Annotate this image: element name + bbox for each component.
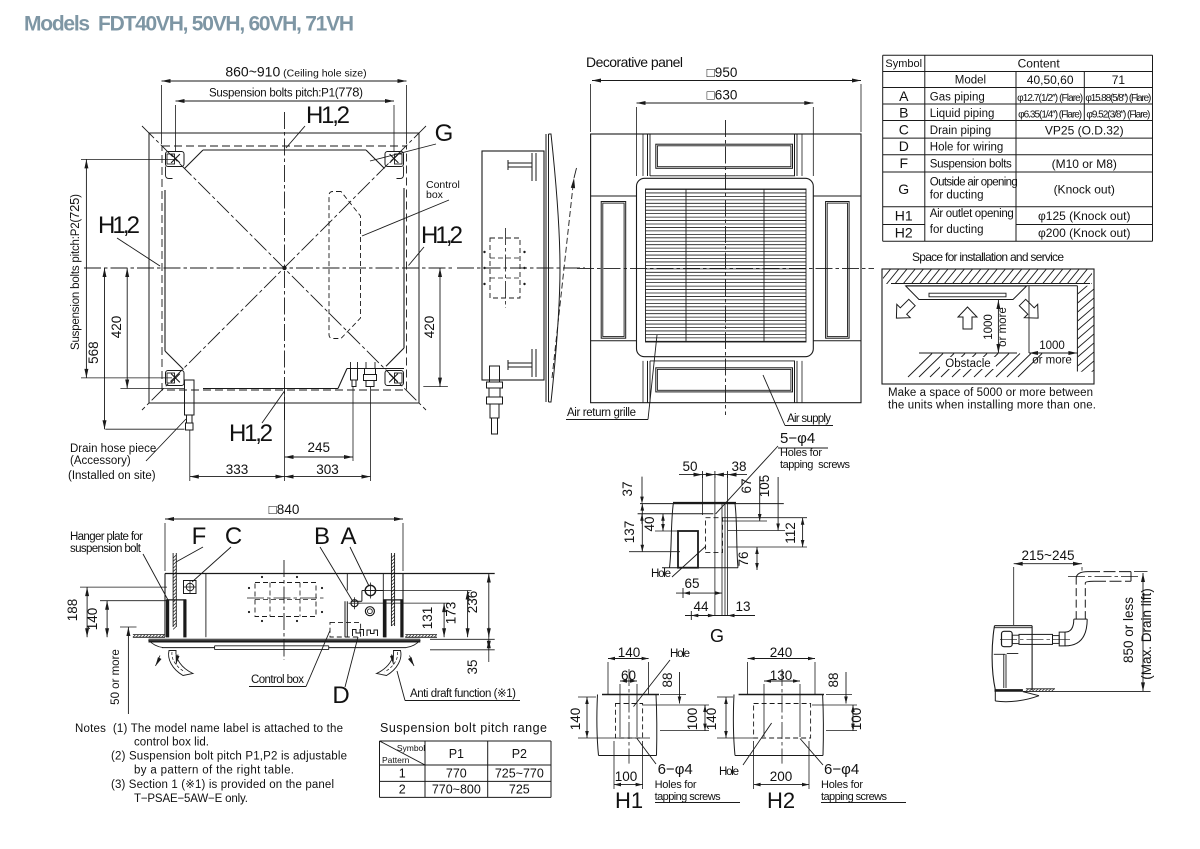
- svg-text:tapping screws: tapping screws: [655, 791, 722, 803]
- svg-text:Suspension bolts: Suspension bolts: [930, 159, 1012, 171]
- svg-text:F: F: [899, 155, 908, 171]
- svg-text:Models FDT40VH, 50VH, 60VH, 7: Models FDT40VH, 50VH, 60VH, 71VH: [24, 13, 354, 36]
- svg-text:H2: H2: [767, 788, 795, 813]
- svg-text:φ200 (Knock out): φ200 (Knock out): [1038, 226, 1131, 240]
- svg-text:100: 100: [615, 769, 638, 784]
- svg-text:Symbol: Symbol: [885, 58, 922, 70]
- svg-text:(M10 or M8): (M10 or M8): [1052, 157, 1117, 171]
- svg-text:Suspension bolts pitch:P2(725): Suspension bolts pitch:P2(725): [67, 194, 82, 350]
- svg-text:Air supply: Air supply: [787, 413, 831, 425]
- svg-text:137: 137: [622, 521, 637, 544]
- svg-text:Pattern: Pattern: [382, 755, 410, 765]
- svg-text:G: G: [435, 120, 454, 147]
- svg-text:suspension bolt: suspension bolt: [70, 543, 142, 555]
- svg-text:303: 303: [316, 462, 339, 477]
- svg-text:φ9.52(3/8″) (Flare): φ9.52(3/8″) (Flare): [1086, 109, 1150, 120]
- svg-text:5−φ4: 5−φ4: [780, 430, 815, 447]
- svg-text:770: 770: [446, 767, 467, 781]
- svg-text:H1: H1: [895, 208, 913, 224]
- svg-text:240: 240: [770, 645, 793, 660]
- svg-text:568: 568: [86, 341, 101, 364]
- svg-text:(2) Suspension bolt pitch P1,P: (2) Suspension bolt pitch P1,P2 is adjus…: [111, 751, 347, 763]
- svg-text:G: G: [898, 181, 909, 197]
- svg-text:140: 140: [85, 608, 100, 631]
- svg-text:Suspension bolt pitch range: Suspension bolt pitch range: [380, 721, 547, 735]
- svg-text:φ6.35(1/4″) (Flare): φ6.35(1/4″) (Flare): [1018, 109, 1082, 120]
- svg-text:P2: P2: [512, 747, 527, 761]
- svg-text:420: 420: [422, 316, 437, 339]
- svg-text:Hole: Hole: [719, 766, 739, 778]
- svg-text:188: 188: [65, 599, 80, 622]
- svg-text:D: D: [332, 682, 349, 709]
- svg-text:the units when installing more: the units when installing more than one.: [888, 400, 1096, 412]
- svg-text:140: 140: [568, 708, 583, 731]
- svg-text:2: 2: [399, 783, 406, 797]
- svg-text:box: box: [426, 189, 444, 201]
- svg-text:H2: H2: [895, 225, 913, 241]
- svg-text:770~800: 770~800: [432, 783, 481, 797]
- svg-text:67: 67: [739, 478, 754, 493]
- svg-text:Space for installation and ser: Space for installation and service: [912, 250, 1064, 264]
- svg-text:100: 100: [849, 708, 864, 731]
- svg-text:H1,2: H1,2: [306, 102, 350, 129]
- svg-text:50 or more: 50 or more: [110, 649, 122, 705]
- svg-text:Make a space of 5000 or more b: Make a space of 5000 or more between: [888, 387, 1093, 399]
- svg-text:φ15.88(5/8″) (Flare): φ15.88(5/8″) (Flare): [1085, 93, 1151, 104]
- svg-text:Holes for: Holes for: [780, 447, 822, 459]
- svg-text:Control box: Control box: [251, 674, 304, 686]
- svg-text:112: 112: [783, 522, 798, 544]
- svg-text:420: 420: [109, 316, 124, 339]
- svg-text:VP25 (O.D.32): VP25 (O.D.32): [1045, 123, 1124, 137]
- svg-text:333: 333: [226, 462, 249, 477]
- svg-text:Holes for: Holes for: [655, 779, 697, 791]
- svg-text:38: 38: [731, 459, 746, 474]
- svg-text:Hole for wiring: Hole for wiring: [930, 142, 1004, 154]
- svg-text:40,50,60: 40,50,60: [1027, 73, 1074, 87]
- svg-text:100: 100: [685, 708, 700, 731]
- svg-text:A: A: [899, 88, 909, 104]
- svg-text:65: 65: [684, 576, 699, 591]
- svg-text:G: G: [710, 626, 724, 646]
- svg-text:35: 35: [465, 659, 480, 674]
- svg-text:or more: or more: [997, 307, 1009, 347]
- svg-text:(Installed on site): (Installed on site): [68, 470, 156, 482]
- svg-text:850 or less: 850 or less: [1121, 597, 1136, 663]
- svg-text:Model: Model: [955, 75, 986, 87]
- svg-text:for ducting: for ducting: [930, 224, 984, 236]
- svg-text:Hole: Hole: [670, 648, 690, 660]
- svg-text:Hanger plate for: Hanger plate for: [70, 531, 143, 543]
- svg-text:(3) Section 1 (※1) is provided: (3) Section 1 (※1) is provided on the pa…: [111, 779, 334, 791]
- svg-text:Suspension bolts pitch:P1(778): Suspension bolts pitch:P1(778): [209, 85, 363, 100]
- svg-text:control box lid.: control box lid.: [134, 737, 209, 749]
- svg-text:6−φ4: 6−φ4: [824, 761, 859, 778]
- svg-text:A: A: [340, 523, 356, 550]
- svg-text:725~770: 725~770: [495, 767, 544, 781]
- svg-text:φ12.7(1/2″) (Flare): φ12.7(1/2″) (Flare): [1017, 93, 1083, 104]
- svg-text:for ducting: for ducting: [930, 190, 984, 202]
- svg-text:B: B: [314, 523, 330, 550]
- svg-text:88: 88: [826, 672, 841, 687]
- svg-text:76: 76: [736, 551, 751, 566]
- svg-text:Notes (1) The model name labe: Notes (1) The model name label is attach…: [75, 723, 343, 735]
- svg-text:Outside air opening: Outside air opening: [930, 177, 1018, 189]
- svg-text:(Accessory): (Accessory): [70, 455, 131, 467]
- svg-text:Drain piping: Drain piping: [930, 125, 991, 137]
- svg-text:Decorative panel: Decorative panel: [586, 54, 683, 70]
- svg-text:F: F: [192, 523, 207, 550]
- svg-text:H1,2: H1,2: [229, 420, 273, 447]
- svg-text:131: 131: [420, 607, 435, 630]
- svg-text:40: 40: [642, 516, 657, 531]
- svg-text:1000: 1000: [1039, 340, 1065, 352]
- svg-text:Air return grille: Air return grille: [567, 407, 636, 419]
- svg-text:□840: □840: [269, 502, 300, 517]
- svg-text:H1,2: H1,2: [421, 222, 463, 249]
- svg-text:Air outlet opening: Air outlet opening: [930, 208, 1014, 220]
- svg-text:Anti draft function (※1): Anti draft function (※1): [410, 688, 516, 700]
- svg-text:□630: □630: [707, 88, 738, 103]
- svg-text:Gas piping: Gas piping: [930, 92, 985, 104]
- svg-text:Symbol: Symbol: [397, 743, 425, 753]
- svg-text:T−PSAE−5AW−E only.: T−PSAE−5AW−E only.: [134, 793, 248, 805]
- svg-text:H1: H1: [615, 788, 643, 813]
- svg-text:H1,2: H1,2: [98, 212, 140, 239]
- svg-text:Liquid piping: Liquid piping: [930, 108, 995, 120]
- svg-text:13: 13: [735, 599, 750, 614]
- svg-text:(Max. Drain lift): (Max. Drain lift): [1139, 588, 1154, 680]
- svg-text:Drain hose piece: Drain hose piece: [70, 443, 156, 455]
- svg-text:P1: P1: [449, 747, 464, 761]
- svg-text:725: 725: [509, 783, 530, 797]
- svg-text:1: 1: [399, 767, 406, 781]
- svg-text:C: C: [899, 122, 909, 138]
- svg-text:50: 50: [682, 459, 697, 474]
- svg-text:□950: □950: [707, 65, 738, 80]
- svg-text:or more: or more: [1032, 355, 1072, 367]
- svg-text:(Knock out): (Knock out): [1054, 183, 1115, 197]
- svg-text:by a pattern of the right tabl: by a pattern of the right table.: [134, 765, 294, 777]
- svg-text:Holes for: Holes for: [821, 779, 863, 791]
- svg-text:105: 105: [757, 475, 772, 498]
- svg-text:φ125 (Knock out): φ125 (Knock out): [1038, 209, 1131, 223]
- svg-text:140: 140: [704, 708, 719, 731]
- svg-text:200: 200: [770, 769, 793, 784]
- svg-text:1000: 1000: [983, 314, 995, 340]
- svg-text:Obstacle: Obstacle: [945, 358, 990, 370]
- svg-text:236: 236: [465, 591, 480, 614]
- svg-text:37: 37: [620, 481, 635, 496]
- svg-text:B: B: [899, 105, 908, 121]
- svg-text:71: 71: [1112, 73, 1126, 87]
- svg-text:173: 173: [444, 602, 459, 625]
- svg-text:Hole: Hole: [651, 568, 671, 580]
- svg-text:88: 88: [660, 672, 675, 687]
- svg-text:44: 44: [693, 599, 709, 614]
- svg-text:245: 245: [308, 440, 331, 455]
- svg-text:tapping screws: tapping screws: [780, 459, 851, 471]
- svg-text:C: C: [225, 523, 242, 550]
- svg-text:Content: Content: [1018, 57, 1061, 71]
- svg-text:215~245: 215~245: [1022, 548, 1075, 563]
- svg-text:tapping screws: tapping screws: [821, 791, 888, 803]
- svg-text:D: D: [899, 138, 909, 154]
- svg-text:6−φ4: 6−φ4: [658, 761, 693, 778]
- svg-text:140: 140: [618, 645, 641, 660]
